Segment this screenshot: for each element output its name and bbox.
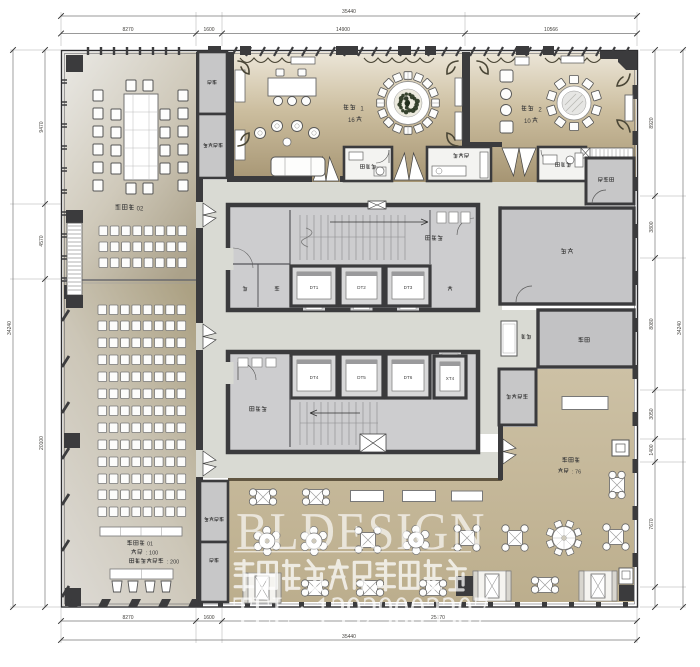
svg-text:DT4: DT4: [310, 375, 319, 380]
svg-text:16: 16: [348, 118, 355, 124]
svg-text:DT2: DT2: [357, 285, 366, 290]
svg-text:20100: 20100: [39, 436, 45, 450]
svg-text:TEL : 13929003307: TEL : 13929003307: [233, 587, 489, 640]
svg-text:DT5: DT5: [357, 375, 366, 380]
svg-text:8080: 8080: [649, 318, 655, 329]
svg-text:7670: 7670: [649, 518, 655, 529]
svg-text:DT3: DT3: [404, 285, 413, 290]
svg-text:XT4: XT4: [446, 376, 455, 381]
svg-text:DT1: DT1: [310, 285, 319, 290]
svg-text:3800: 3800: [649, 221, 655, 232]
svg-text:DT6: DT6: [404, 375, 413, 380]
svg-text:34240: 34240: [7, 321, 13, 335]
svg-text:02: 02: [137, 207, 144, 213]
svg-text:8270: 8270: [122, 615, 133, 621]
svg-text:1600: 1600: [203, 615, 214, 621]
svg-text:: 200: : 200: [167, 560, 179, 566]
svg-text:34240: 34240: [677, 321, 683, 335]
svg-text:: 76: : 76: [572, 470, 581, 476]
svg-text:10: 10: [524, 119, 531, 125]
svg-text:9470: 9470: [39, 121, 45, 132]
svg-text:35440: 35440: [342, 9, 356, 15]
svg-text:1400: 1400: [649, 444, 655, 455]
svg-text:4570: 4570: [39, 235, 45, 246]
svg-text:8920: 8920: [649, 117, 655, 128]
svg-text:1600: 1600: [203, 27, 214, 33]
svg-text:14900: 14900: [336, 27, 350, 33]
svg-text:10566: 10566: [544, 27, 558, 33]
svg-text:3050: 3050: [649, 408, 655, 419]
svg-text:01: 01: [147, 542, 153, 548]
svg-text:: 100: : 100: [146, 551, 158, 557]
svg-text:8270: 8270: [122, 27, 133, 33]
